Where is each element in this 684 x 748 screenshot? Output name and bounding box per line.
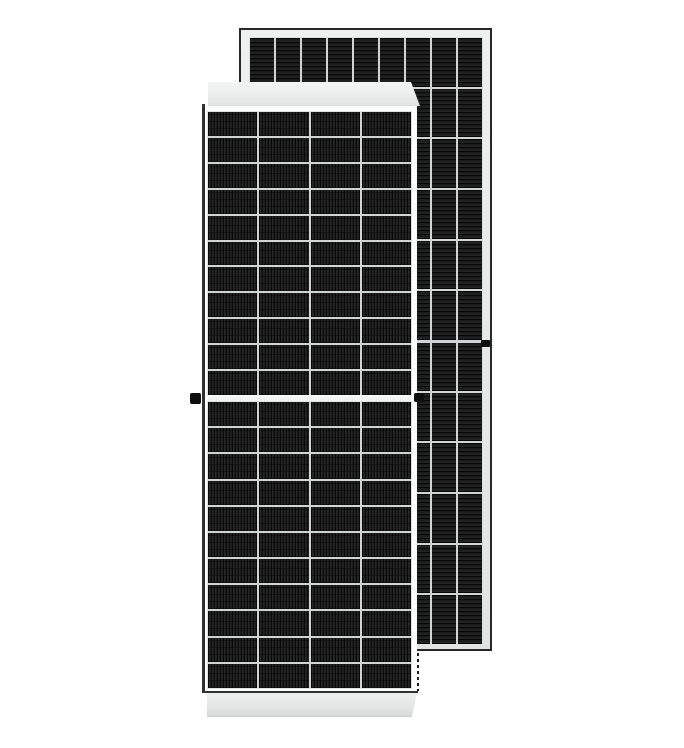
- solar-cell: [259, 611, 308, 635]
- solar-cell: [311, 481, 360, 505]
- solar-cell: [259, 507, 308, 531]
- solar-cell: [208, 507, 257, 531]
- solar-cell: [311, 638, 360, 662]
- solar-cell: [458, 494, 482, 543]
- solar-cell: [362, 664, 411, 688]
- solar-cell: [208, 585, 257, 609]
- front-panel-top-frame: [208, 82, 420, 106]
- solar-cell: [311, 559, 360, 583]
- solar-cell: [458, 342, 482, 391]
- solar-cell: [311, 319, 360, 343]
- half-cut-split-line: [208, 395, 411, 402]
- solar-cell: [208, 638, 257, 662]
- solar-cell: [458, 291, 482, 340]
- solar-cell: [311, 164, 360, 188]
- solar-cell: [259, 164, 308, 188]
- solar-cell: [458, 443, 482, 492]
- front-panel-lower-cell-grid: [208, 402, 411, 688]
- solar-cell: [208, 345, 257, 369]
- solar-cell: [362, 454, 411, 478]
- solar-cell: [432, 494, 456, 543]
- solar-cell: [259, 242, 308, 266]
- grounding-lug-right: [414, 393, 424, 402]
- solar-cell: [362, 164, 411, 188]
- solar-cell: [259, 402, 308, 426]
- solar-cell: [458, 393, 482, 442]
- solar-cell: [380, 38, 404, 87]
- solar-cell: [458, 89, 482, 138]
- solar-cell: [432, 595, 456, 644]
- solar-cell: [276, 38, 300, 87]
- solar-cell: [208, 481, 257, 505]
- solar-cell: [259, 190, 308, 214]
- solar-cell: [432, 89, 456, 138]
- solar-cell: [432, 241, 456, 290]
- solar-cell: [311, 242, 360, 266]
- solar-cell: [311, 585, 360, 609]
- solar-cell: [362, 371, 411, 395]
- solar-cell: [259, 371, 308, 395]
- solar-cell: [432, 190, 456, 239]
- solar-cell: [362, 293, 411, 317]
- solar-cell: [362, 585, 411, 609]
- solar-cell: [362, 216, 411, 240]
- solar-cell: [311, 216, 360, 240]
- solar-cell: [362, 402, 411, 426]
- solar-cell: [208, 267, 257, 291]
- solar-cell: [362, 267, 411, 291]
- solar-cell: [208, 402, 257, 426]
- solar-cell: [208, 112, 257, 136]
- solar-cell: [311, 428, 360, 452]
- solar-cell: [362, 112, 411, 136]
- frame-mount-mark: [481, 340, 490, 347]
- solar-cell: [259, 345, 308, 369]
- solar-cell: [362, 428, 411, 452]
- solar-cell: [458, 595, 482, 644]
- solar-cell: [259, 319, 308, 343]
- solar-cell: [311, 293, 360, 317]
- solar-cell: [208, 293, 257, 317]
- solar-cell: [362, 138, 411, 162]
- solar-cell: [259, 216, 308, 240]
- solar-cell: [311, 507, 360, 531]
- solar-cell: [259, 454, 308, 478]
- solar-cell: [362, 638, 411, 662]
- product-image-solar-panels: [0, 0, 684, 748]
- solar-cell: [432, 291, 456, 340]
- solar-cell: [328, 38, 352, 87]
- solar-cell: [259, 293, 308, 317]
- solar-cell: [208, 371, 257, 395]
- solar-cell: [208, 216, 257, 240]
- solar-cell: [311, 533, 360, 557]
- solar-cell: [208, 611, 257, 635]
- solar-cell: [362, 611, 411, 635]
- solar-cell: [259, 267, 308, 291]
- solar-cell: [208, 138, 257, 162]
- solar-cell: [362, 507, 411, 531]
- solar-cell: [458, 38, 482, 87]
- solar-panel-front: [205, 106, 417, 691]
- solar-cell: [311, 190, 360, 214]
- solar-cell: [250, 38, 274, 87]
- solar-cell: [406, 38, 430, 87]
- solar-cell: [458, 139, 482, 188]
- front-panel-right-edge-dashed: [417, 653, 419, 691]
- solar-cell: [259, 585, 308, 609]
- solar-cell: [432, 443, 456, 492]
- solar-cell: [259, 638, 308, 662]
- solar-cell: [311, 138, 360, 162]
- solar-cell: [208, 428, 257, 452]
- grounding-lug-left: [190, 393, 201, 404]
- solar-cell: [259, 138, 308, 162]
- solar-cell: [259, 664, 308, 688]
- solar-cell: [362, 319, 411, 343]
- solar-cell: [311, 267, 360, 291]
- front-panel-bottom-frame: [207, 693, 417, 717]
- solar-cell: [432, 393, 456, 442]
- solar-cell: [302, 38, 326, 87]
- solar-cell: [311, 345, 360, 369]
- solar-cell: [311, 611, 360, 635]
- solar-cell: [432, 139, 456, 188]
- solar-cell: [432, 545, 456, 594]
- solar-cell: [362, 481, 411, 505]
- solar-cell: [432, 38, 456, 87]
- solar-cell: [208, 164, 257, 188]
- solar-cell: [208, 533, 257, 557]
- solar-cell: [208, 454, 257, 478]
- solar-cell: [259, 481, 308, 505]
- solar-cell: [362, 345, 411, 369]
- solar-cell: [208, 664, 257, 688]
- solar-cell: [259, 428, 308, 452]
- solar-cell: [208, 319, 257, 343]
- solar-cell: [208, 559, 257, 583]
- solar-cell: [259, 559, 308, 583]
- solar-cell: [259, 112, 308, 136]
- solar-cell: [458, 190, 482, 239]
- solar-cell: [311, 402, 360, 426]
- solar-cell: [354, 38, 378, 87]
- solar-cell: [362, 533, 411, 557]
- solar-cell: [362, 242, 411, 266]
- solar-cell: [362, 190, 411, 214]
- solar-cell: [311, 664, 360, 688]
- solar-cell: [432, 342, 456, 391]
- solar-cell: [208, 242, 257, 266]
- solar-cell: [311, 112, 360, 136]
- solar-cell: [458, 241, 482, 290]
- solar-cell: [311, 454, 360, 478]
- solar-cell: [259, 533, 308, 557]
- solar-cell: [311, 371, 360, 395]
- solar-cell: [458, 545, 482, 594]
- solar-cell: [208, 190, 257, 214]
- solar-cell: [362, 559, 411, 583]
- front-panel-upper-cell-grid: [208, 112, 411, 395]
